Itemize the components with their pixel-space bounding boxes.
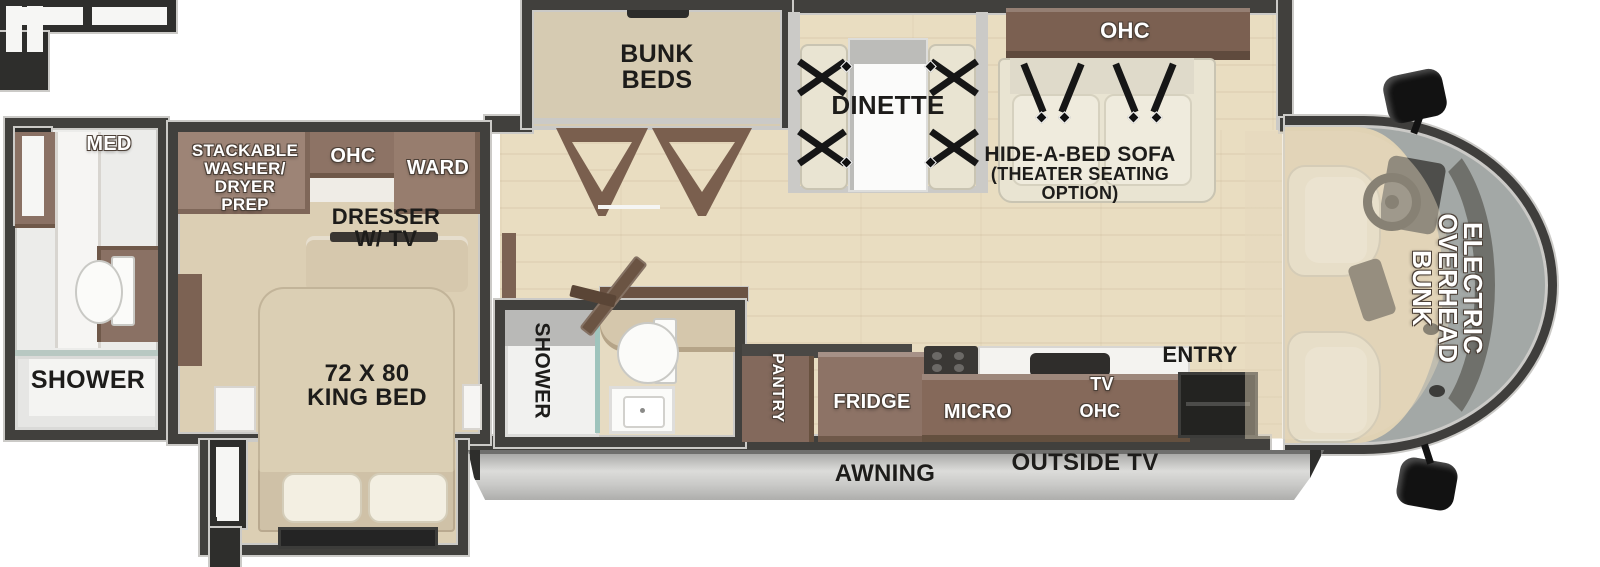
washer-prep-line1: STACKABLE [174, 142, 316, 160]
mid-bathroom: SHOWER [495, 300, 745, 447]
dinette-slide-wall-left [788, 12, 800, 192]
wall-step-front [1278, 0, 1292, 128]
electric-overhead-bunk-label: ELECTRIC OVERHEAD BUNK [1409, 168, 1485, 408]
ward-label: WARD [400, 158, 476, 178]
washer-prep-line2: WASHER/ [174, 160, 316, 178]
awning-cap-right [1310, 450, 1321, 482]
hide-a-bed-line3: OPTION) [968, 184, 1192, 202]
burner-1 [932, 352, 942, 360]
awning-cap-left [470, 450, 480, 480]
king-bed-line1: 72 X 80 [307, 362, 427, 386]
rear-bath-med-label: MED [63, 134, 155, 154]
bunk-slide-handle [627, 10, 689, 18]
bedroom-ohc-label: OHC [318, 146, 388, 166]
bedroom-counter [310, 178, 394, 202]
kitchen-ohc-label: OHC [1060, 402, 1140, 420]
overhead-bunk-line3: BUNK [1409, 168, 1434, 408]
king-bed-label: 72 X 80 KING BED [307, 362, 427, 411]
rear-bathroom: MED SHOWER [5, 118, 168, 440]
tv-label: TV [1077, 375, 1127, 393]
entry-label: ENTRY [1152, 344, 1248, 366]
dresser-label: DRESSER W/ TV [306, 206, 466, 251]
bunk-bed-slideout: BUNK BEDS [522, 0, 792, 128]
dinette-label: DINETTE [820, 92, 956, 119]
king-bed-pillow-right [368, 473, 448, 523]
burner-4 [954, 364, 964, 372]
hide-a-bed-line1: HIDE-A-BED SOFA [968, 144, 1192, 165]
bedroom-side-cabinet [178, 274, 202, 366]
mid-shower-glass-door [595, 314, 600, 433]
washer-prep-line3: DRYER [174, 178, 316, 196]
bunk-beds-line1: BUNK [592, 42, 722, 68]
burner-2 [954, 352, 964, 360]
dresser-line2: W/ TV [306, 228, 466, 250]
nightstand-left [214, 386, 256, 432]
toilet-bowl [75, 260, 123, 324]
awning-label: AWNING [800, 462, 970, 486]
burner-3 [932, 364, 942, 372]
overhead-bunk-line2: OVERHEAD [1434, 168, 1459, 408]
mid-bath-sink-drain [640, 408, 645, 413]
dinette-window-pane2 [92, 7, 167, 25]
overhead-bunk-line1: ELECTRIC [1460, 168, 1485, 408]
bunk-beds-line2: BEDS [592, 68, 722, 94]
bunk-support-rail [598, 205, 660, 209]
entry-step-line [1186, 402, 1250, 406]
micro-label: MICRO [928, 402, 1028, 422]
dresser-line1: DRESSER [306, 206, 466, 228]
mid-toilet-bowl [617, 322, 679, 384]
sofa-side-window-pane2 [27, 6, 43, 52]
hide-a-bed-line2: (THEATER SEATING [968, 165, 1192, 183]
outside-tv-label: OUTSIDE TV [995, 451, 1175, 475]
awning-rail [468, 450, 1324, 454]
bunk-slide-sill [532, 118, 782, 124]
king-slide-window-right [210, 528, 240, 567]
sofa-side-window-pane1 [6, 6, 22, 52]
rear-bath-window-pane [22, 136, 44, 216]
washer-prep-line4: PREP [174, 196, 316, 214]
mid-shower-label: SHOWER [531, 316, 552, 426]
sofa-ohc-label: OHC [1080, 20, 1170, 42]
rear-shower-label: SHOWER [23, 368, 153, 394]
king-bed-pillow-left [282, 473, 362, 523]
king-bed-line2: KING BED [307, 386, 427, 410]
fridge-label: FRIDGE [822, 392, 922, 412]
rv-floorplan: MED SHOWER STACKABLE WASHER/ DRYER PREP … [0, 0, 1600, 567]
king-slide-window-right-pane [216, 447, 234, 517]
bunk-beds-label: BUNK BEDS [592, 42, 722, 93]
pantry-label: PANTRY [769, 333, 785, 443]
hide-a-bed-label: HIDE-A-BED SOFA (THEATER SEATING OPTION) [968, 144, 1192, 202]
king-bed-foot-window [278, 527, 438, 549]
nightstand-right [462, 384, 482, 430]
wall-cabinet-strip [502, 233, 516, 305]
sofa-side-window [0, 32, 48, 90]
washer-prep-label: STACKABLE WASHER/ DRYER PREP [174, 142, 316, 214]
